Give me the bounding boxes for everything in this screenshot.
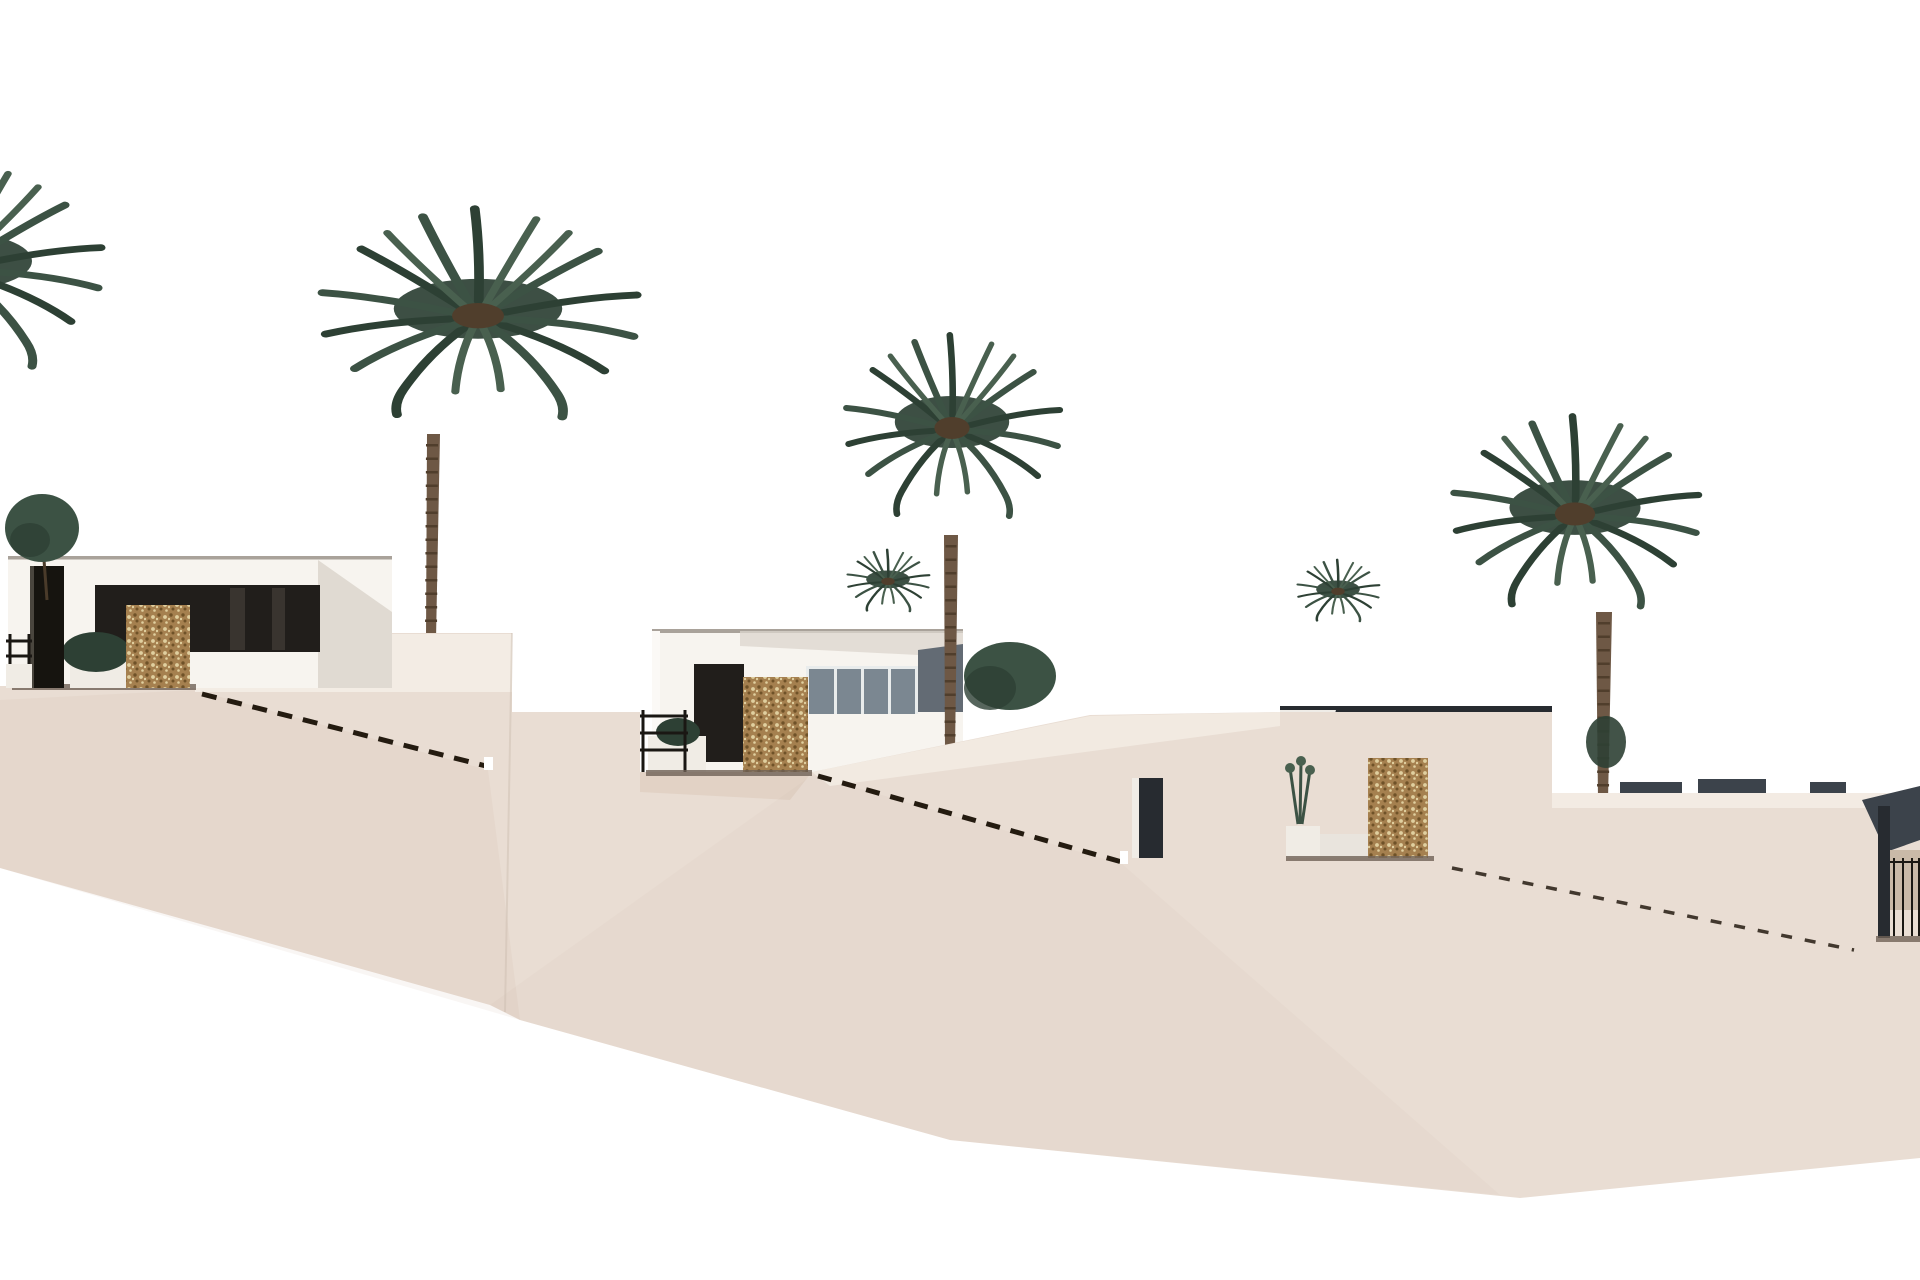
villa-1 <box>6 556 392 690</box>
distant-roof-slab <box>1810 782 1846 794</box>
villa3-plant-leaves <box>1296 756 1306 766</box>
villa2-stone-pillar <box>743 677 808 772</box>
villa1-stone-pillar <box>126 605 190 688</box>
palm-a-trunk-rings <box>431 444 432 636</box>
distant-roof-slab <box>1620 782 1682 794</box>
stairs-1-end-post <box>484 757 493 770</box>
stairs-2-end-post <box>1120 851 1128 864</box>
villa-render <box>0 0 1920 1280</box>
tree1-canopy-shade <box>10 523 50 557</box>
terrace3-gate <box>1132 778 1163 858</box>
villa4-floor-shadow <box>1876 936 1920 942</box>
villa3-plant-leaves <box>1285 763 1295 773</box>
villa1-entry-bush <box>62 632 130 672</box>
render-canvas <box>0 0 1920 1280</box>
villa2-floor-shadow <box>646 770 812 776</box>
villa3-stone-pillar <box>1368 758 1428 858</box>
tree-behind-villa2 <box>964 642 1056 710</box>
villa4-post <box>1878 806 1890 938</box>
terrace3-gate-jamb <box>1132 778 1139 858</box>
villa1-window-glint <box>272 588 285 650</box>
palm-c-dead-fronds <box>1586 716 1626 768</box>
villa3-floor-shadow <box>1286 856 1434 861</box>
villa3-low-wall <box>1320 834 1368 858</box>
terrace3-gate-opening <box>1139 778 1163 858</box>
villa1-window-glint <box>230 588 245 650</box>
tree2-canopy-shade <box>964 666 1016 710</box>
villa3-plant-leaves <box>1305 765 1315 775</box>
villa1-roof-edge <box>8 556 392 560</box>
distant-roof-slab <box>1698 779 1766 794</box>
villa3-planter <box>1286 826 1320 858</box>
villa1-rail-planter <box>6 664 32 688</box>
